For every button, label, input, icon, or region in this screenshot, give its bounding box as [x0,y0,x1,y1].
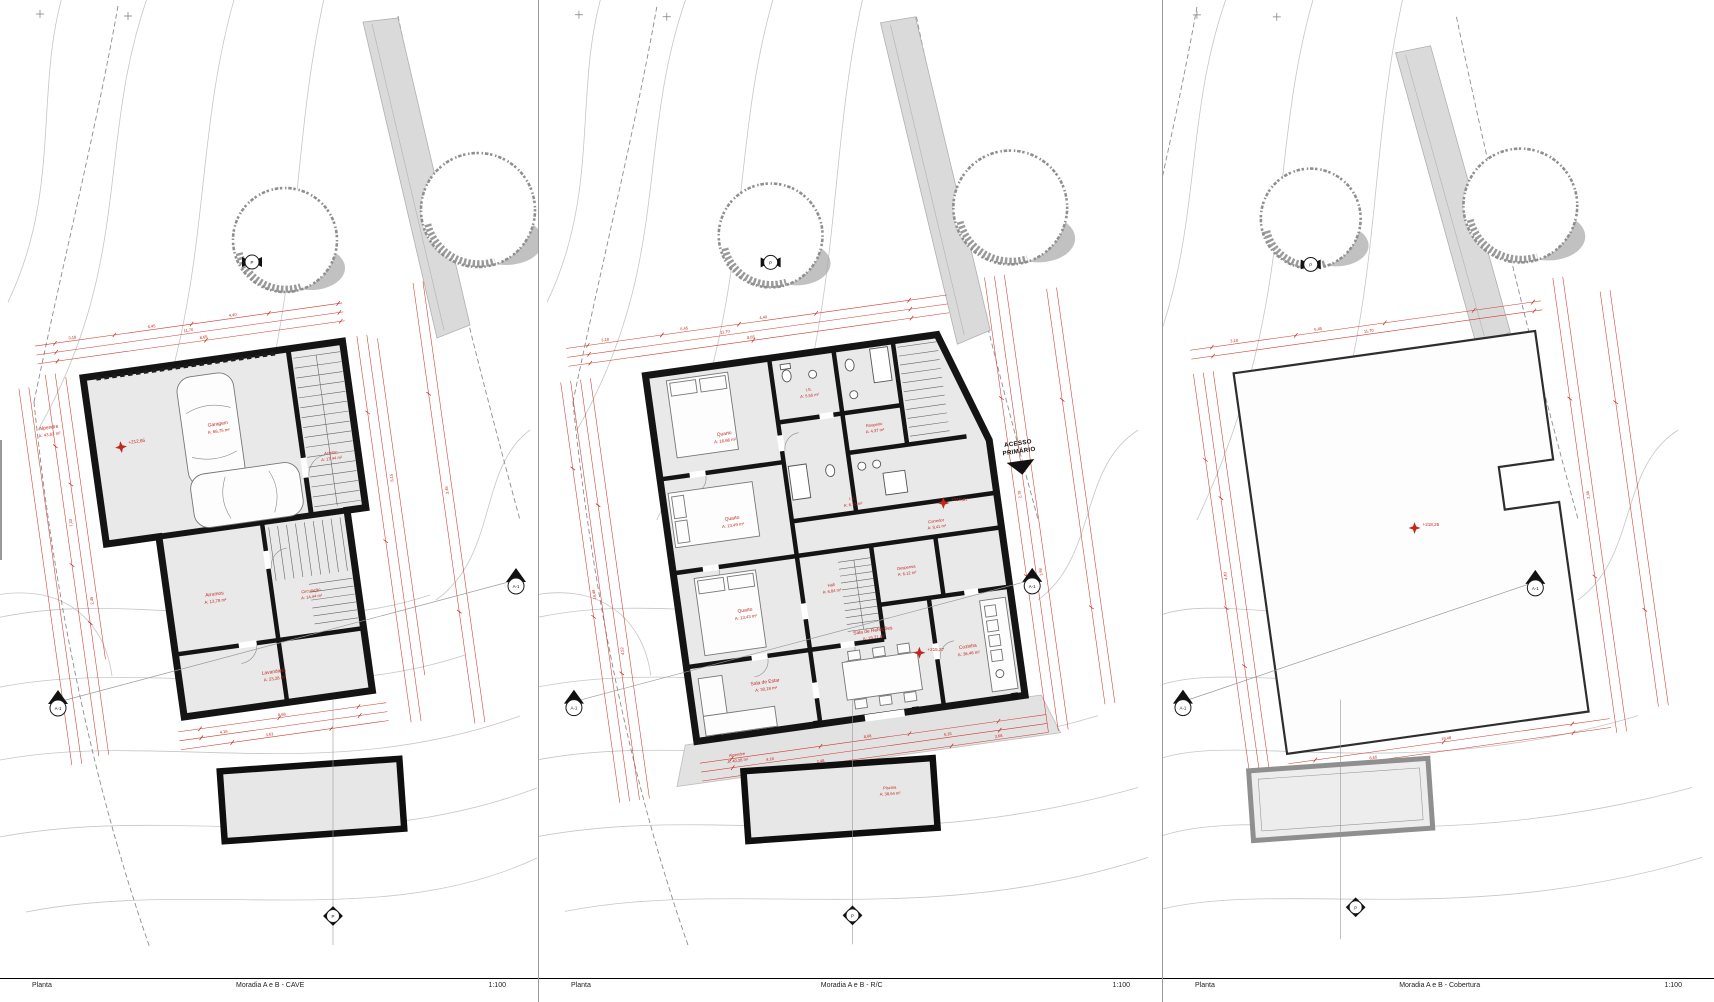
dim-label: 3,18 [1230,337,1239,343]
dim-label: 4,16 [219,728,228,734]
level-value: +215,27 [927,647,944,652]
footer-doc-type: Planta [571,982,591,989]
plan-drawing-cobertura: 3,18 6,45 11,70 8,65 4,40 2,45 19,48 +21… [1163,0,1714,1002]
dim-label: 19,48 [1441,735,1452,741]
dim-label: 4,52 [619,646,625,655]
section-marker-right: A-1 [506,568,526,594]
plan-drawing-cave: Alpendre A: 43,63 m² Garagem A: 68,75 m²… [0,0,538,1002]
plan-drawing-rc: Quarto A: 16,66 m² I.S. A: 5,55 m² Roupe… [539,0,1162,1002]
svg-text:A-1: A-1 [513,584,520,589]
dim-label: 4,40 [229,312,238,318]
footer-title: Moradia A e B - R/C [821,982,883,989]
plan-panel-rc: Quarto A: 16,66 m² I.S. A: 5,55 m² Roupe… [538,0,1162,1002]
svg-text:A-1: A-1 [571,706,578,711]
dim-label: 2,45 [89,596,95,605]
footer-title: Moradia A e B - Cobertura [1399,982,1480,989]
bed [666,372,738,458]
footer-scale: 1:100 [488,982,506,989]
tree-icon [1261,169,1369,269]
svg-text:P: P [769,260,772,265]
dim-label: 11,70 [1364,327,1375,333]
survey-marker-bottom: P [323,906,343,926]
tree-icon [719,184,831,288]
room-label: I.S. [849,495,856,501]
room-label: Hall [827,582,835,588]
dim-label: 4,40 [1222,571,1228,580]
section-marker-left: A-1 [48,690,68,716]
titleblock-rc: Planta Moradia A e B - R/C 1:100 [539,978,1162,1002]
dim-label: 4,40 [759,314,768,320]
room-label: I.S. [805,387,812,393]
dim-label: 7,33 [67,518,73,527]
survey-marker-bottom: P [843,905,863,925]
svg-text:P: P [332,914,335,919]
svg-text:P: P [1354,905,1357,910]
svg-text:A-1: A-1 [1180,706,1187,711]
building-plan-cave: Alpendre A: 43,63 m² Garagem A: 68,75 m²… [12,281,485,779]
section-marker-left: A-1 [564,690,584,716]
svg-text:P: P [851,913,854,918]
dim-label: 3,63 [265,731,274,737]
drawing-sheet: Alpendre A: 43,63 m² Garagem A: 68,75 m²… [0,0,1714,1002]
tree-icon [953,151,1075,265]
svg-text:P: P [1309,262,1312,267]
footer-title: Moradia A e B - CAVE [236,982,304,989]
dim-label: 6,45 [147,323,156,329]
plan-panel-cave: Alpendre A: 43,63 m² Garagem A: 68,75 m²… [0,0,538,1002]
dim-label: 2,78 [1016,489,1022,498]
survey-marker-bottom: P [1346,897,1366,917]
tree-icon [421,153,538,267]
section-marker-left: A-1 [1173,690,1193,716]
pool [220,759,404,841]
dim-label: 11,70 [720,328,731,334]
tree-icon [233,188,345,292]
level-value: +218,25 [1423,522,1440,527]
dim-label: 6,45 [680,325,689,331]
titleblock-cobertura: Planta Moradia A e B - Cobertura 1:100 [1163,978,1714,1002]
roof-outline [1234,331,1589,754]
dim-label: 2,45 [1585,490,1591,499]
svg-text:P: P [251,260,254,265]
dim-label: 6,15 [388,473,394,482]
dim-label: 8,68 [278,711,287,717]
room-label: Piscina [883,785,897,791]
footer-scale: 1:100 [1664,982,1682,989]
pool: Piscina A: 38,64 m² [743,758,937,841]
dim-label: 6,45 [1314,326,1323,332]
tree-icon [1463,149,1585,263]
dim-label: 3,18 [601,336,610,342]
bed [668,482,760,548]
plan-panel-cobertura: 3,18 6,45 11,70 8,65 4,40 2,45 19,48 +21… [1162,0,1714,1002]
titleblock-cave: Planta Moradia A e B - CAVE 1:100 [0,978,538,1002]
svg-text:A-1: A-1 [55,706,62,711]
dim-label: 11,70 [183,327,194,333]
building-plan-rc: Quarto A: 16,66 m² I.S. A: 5,55 m² Roupe… [552,268,1119,803]
footer-doc-type: Planta [32,982,52,989]
roof-plan: 3,18 6,45 11,70 8,65 4,40 2,45 19,48 [1185,270,1672,794]
svg-text:A-1: A-1 [1029,584,1036,589]
level-value: +215,27 [951,497,968,502]
dim-label: 19,48 [591,589,597,600]
footer-doc-type: Planta [1195,982,1215,989]
footer-scale: 1:100 [1112,982,1130,989]
svg-text:A-1: A-1 [1532,586,1539,591]
dim-label: 3,18 [68,334,77,340]
dim-label: 1,98 [1037,567,1043,576]
dim-label: 3,45 [444,485,450,494]
